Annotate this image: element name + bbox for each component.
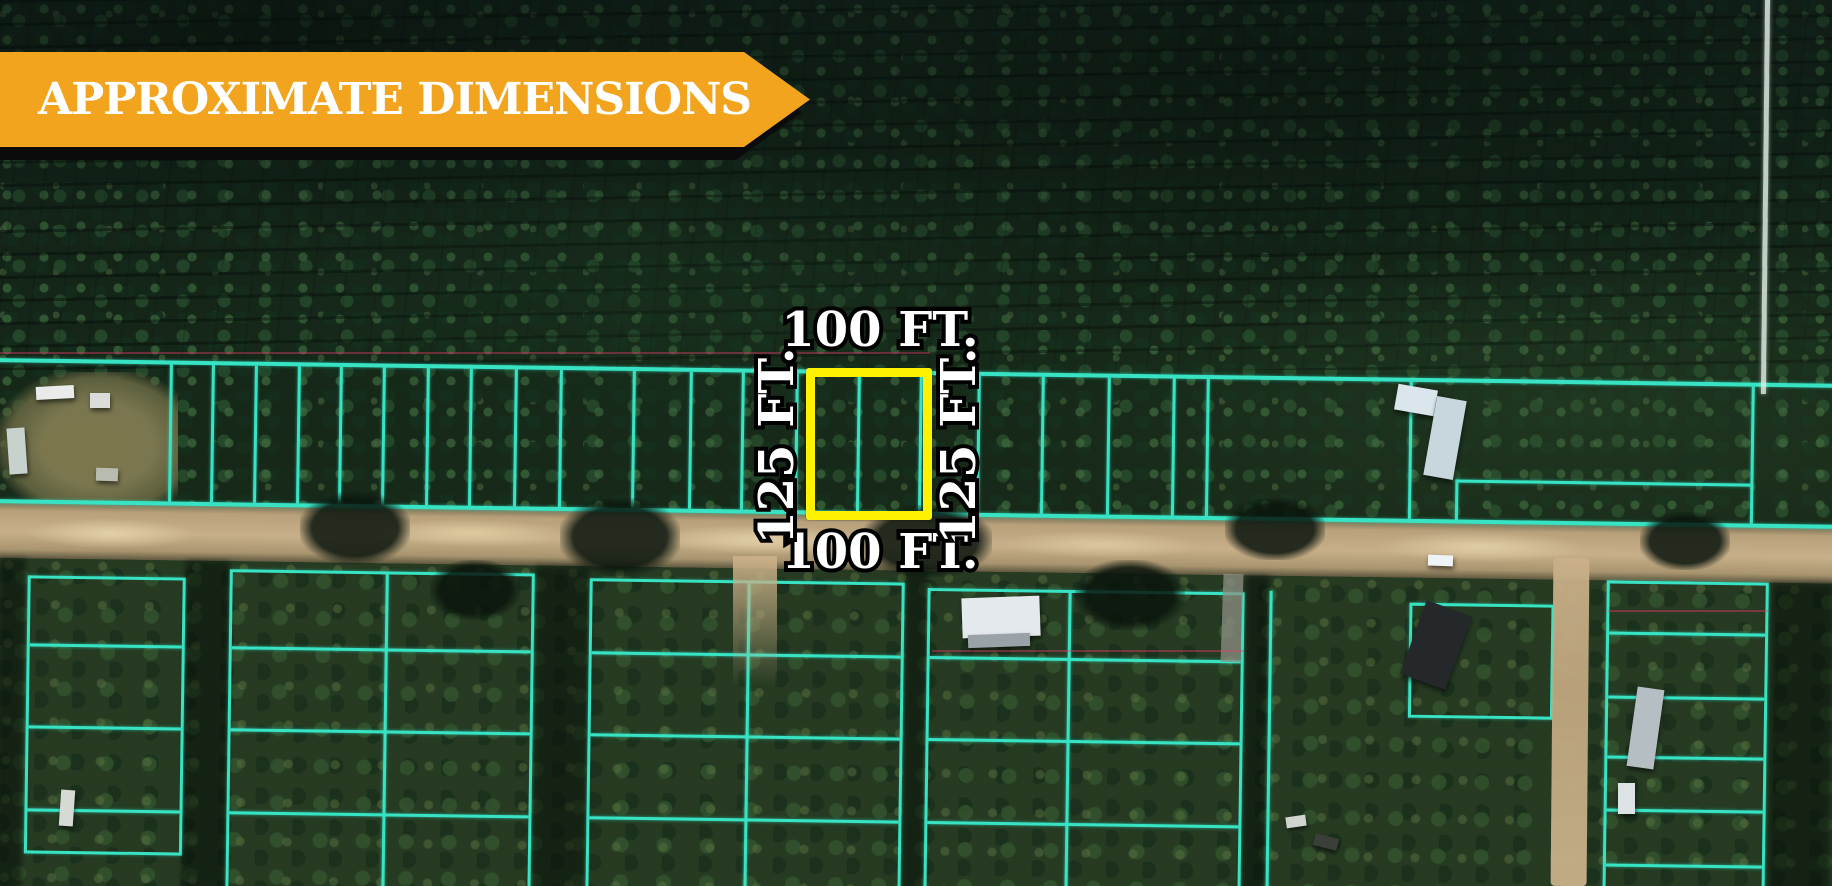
plat-line-red — [1608, 610, 1768, 612]
parcel-highlight-box — [806, 368, 932, 520]
dimension-label-left: 125 FT. — [755, 346, 799, 546]
banner-label: APPROXIMATE DIMENSIONS — [38, 74, 751, 125]
dimension-label-right: 125 FT. — [937, 346, 981, 546]
plat-line-red — [932, 650, 1244, 652]
tree-canopy — [1075, 560, 1185, 630]
tree-canopy — [560, 498, 680, 576]
approximate-dimensions-banner: APPROXIMATE DIMENSIONS — [0, 52, 810, 147]
aerial-map: 100 FT. 100 FT. 125 FT. 125 FT. APPROXIM… — [0, 0, 1832, 886]
tree-canopy — [1225, 498, 1325, 560]
tree-canopy — [1640, 512, 1730, 570]
tree-canopy — [430, 560, 520, 620]
tree-canopy — [300, 492, 410, 564]
